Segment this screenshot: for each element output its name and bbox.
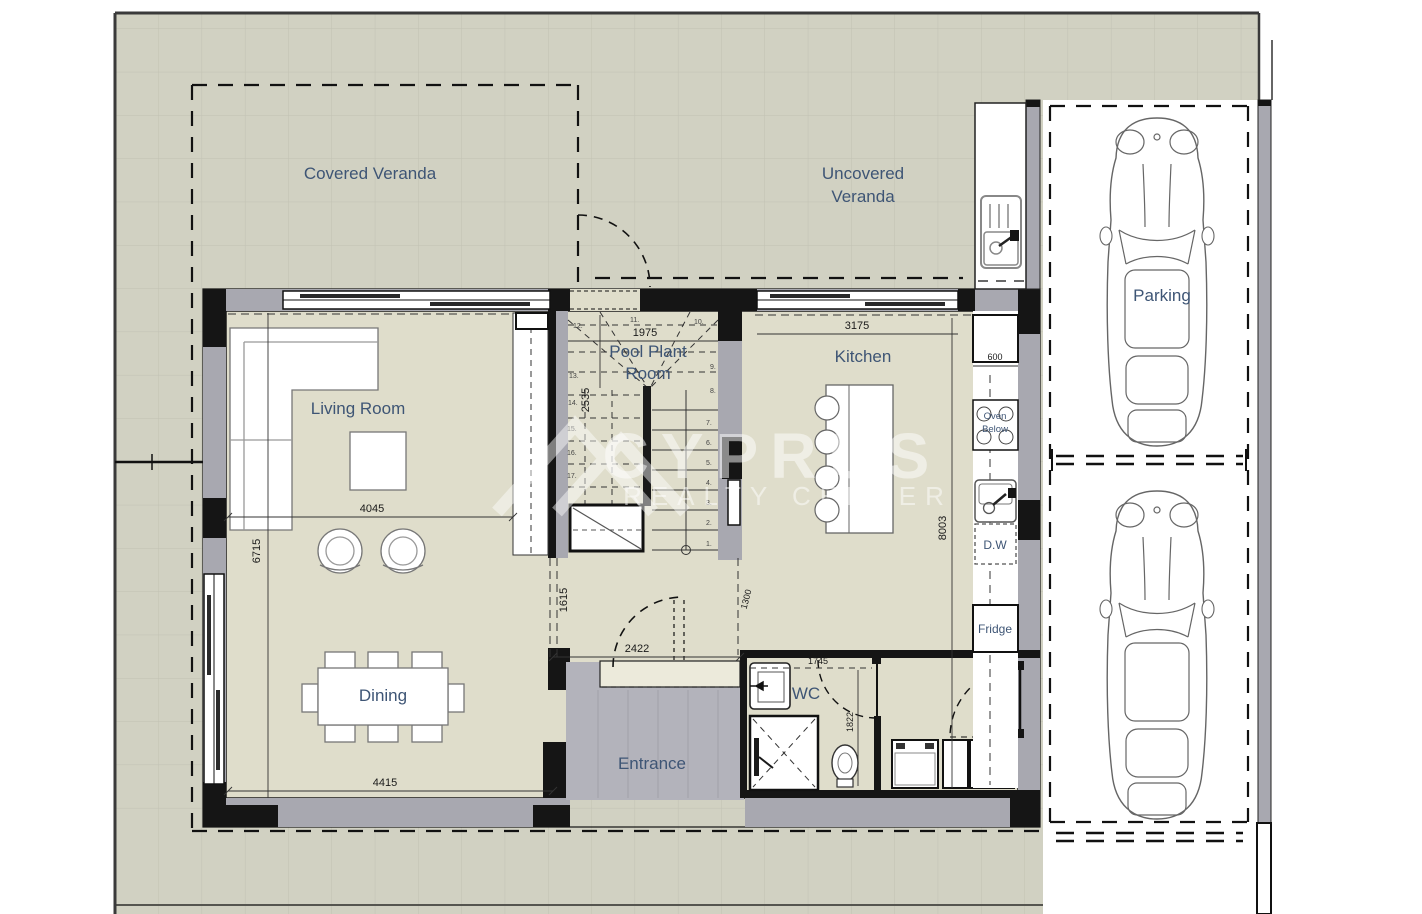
dim-hall-width: 2422	[625, 643, 649, 655]
toilet	[832, 745, 858, 781]
kitchen-label: Kitchen	[835, 347, 892, 366]
dishwasher-label: D.W	[983, 538, 1007, 552]
parking-label: Parking	[1133, 286, 1191, 305]
fridge-label: Fridge	[978, 622, 1012, 636]
dim-hall-1615: 1615	[558, 588, 570, 612]
dim-wc-width: 1745	[808, 656, 828, 666]
dim-dining-width: 4415	[373, 777, 397, 789]
stair-step-number: 14.	[568, 400, 578, 407]
floor-plan-drawing: Parking	[0, 0, 1422, 914]
covered-veranda-label: Covered Veranda	[304, 164, 437, 183]
pool-plant-label-2: Room	[625, 364, 670, 383]
uncovered-veranda-label-1: Uncovered	[822, 164, 904, 183]
uncovered-veranda-label-2: Veranda	[831, 187, 895, 206]
stair-step-number: 12.	[573, 323, 583, 330]
entrance-label: Entrance	[618, 754, 686, 773]
dim-kitchen-height: 8003	[937, 516, 949, 540]
stair-step-number: 13.	[569, 373, 579, 380]
oven-label-line2: Below	[982, 424, 1008, 435]
stair-step-number: 8.	[710, 388, 716, 395]
stair-step-number: 2.	[706, 520, 712, 527]
kitchen-sink	[975, 480, 1016, 522]
dim-kitchen-width: 3175	[845, 320, 869, 332]
dim-living-width: 4045	[360, 503, 384, 515]
pool-plant-label-1: Pool Plant	[609, 342, 687, 361]
dim-counter: 600	[987, 352, 1002, 362]
dim-pool-height: 2535	[580, 388, 592, 412]
watermark-tagline: REALTY CENTER	[623, 481, 953, 511]
dim-living-height: 6715	[251, 539, 263, 563]
floor-plan-canvas: Parking	[0, 0, 1422, 914]
parking-area: Parking	[1043, 40, 1272, 914]
wc-label: WC	[792, 684, 820, 703]
stair-step-number: 17.	[567, 473, 577, 480]
dim-wc-height: 1822	[845, 712, 855, 732]
stair-step-number: 16.	[567, 450, 577, 457]
dim-pool-width: 1975	[633, 327, 657, 339]
stair-step-number: 10.	[694, 319, 704, 326]
oven-label-line1: Oven	[984, 411, 1007, 422]
dining-label: Dining	[359, 686, 407, 705]
stair-step-number: 9.	[710, 364, 716, 371]
stair-step-number: 1.	[706, 541, 712, 548]
outdoor-sink-unit	[975, 100, 1040, 289]
living-room-label: Living Room	[311, 399, 406, 418]
stair-step-number: 11.	[630, 317, 639, 324]
coffee-table	[350, 432, 406, 490]
